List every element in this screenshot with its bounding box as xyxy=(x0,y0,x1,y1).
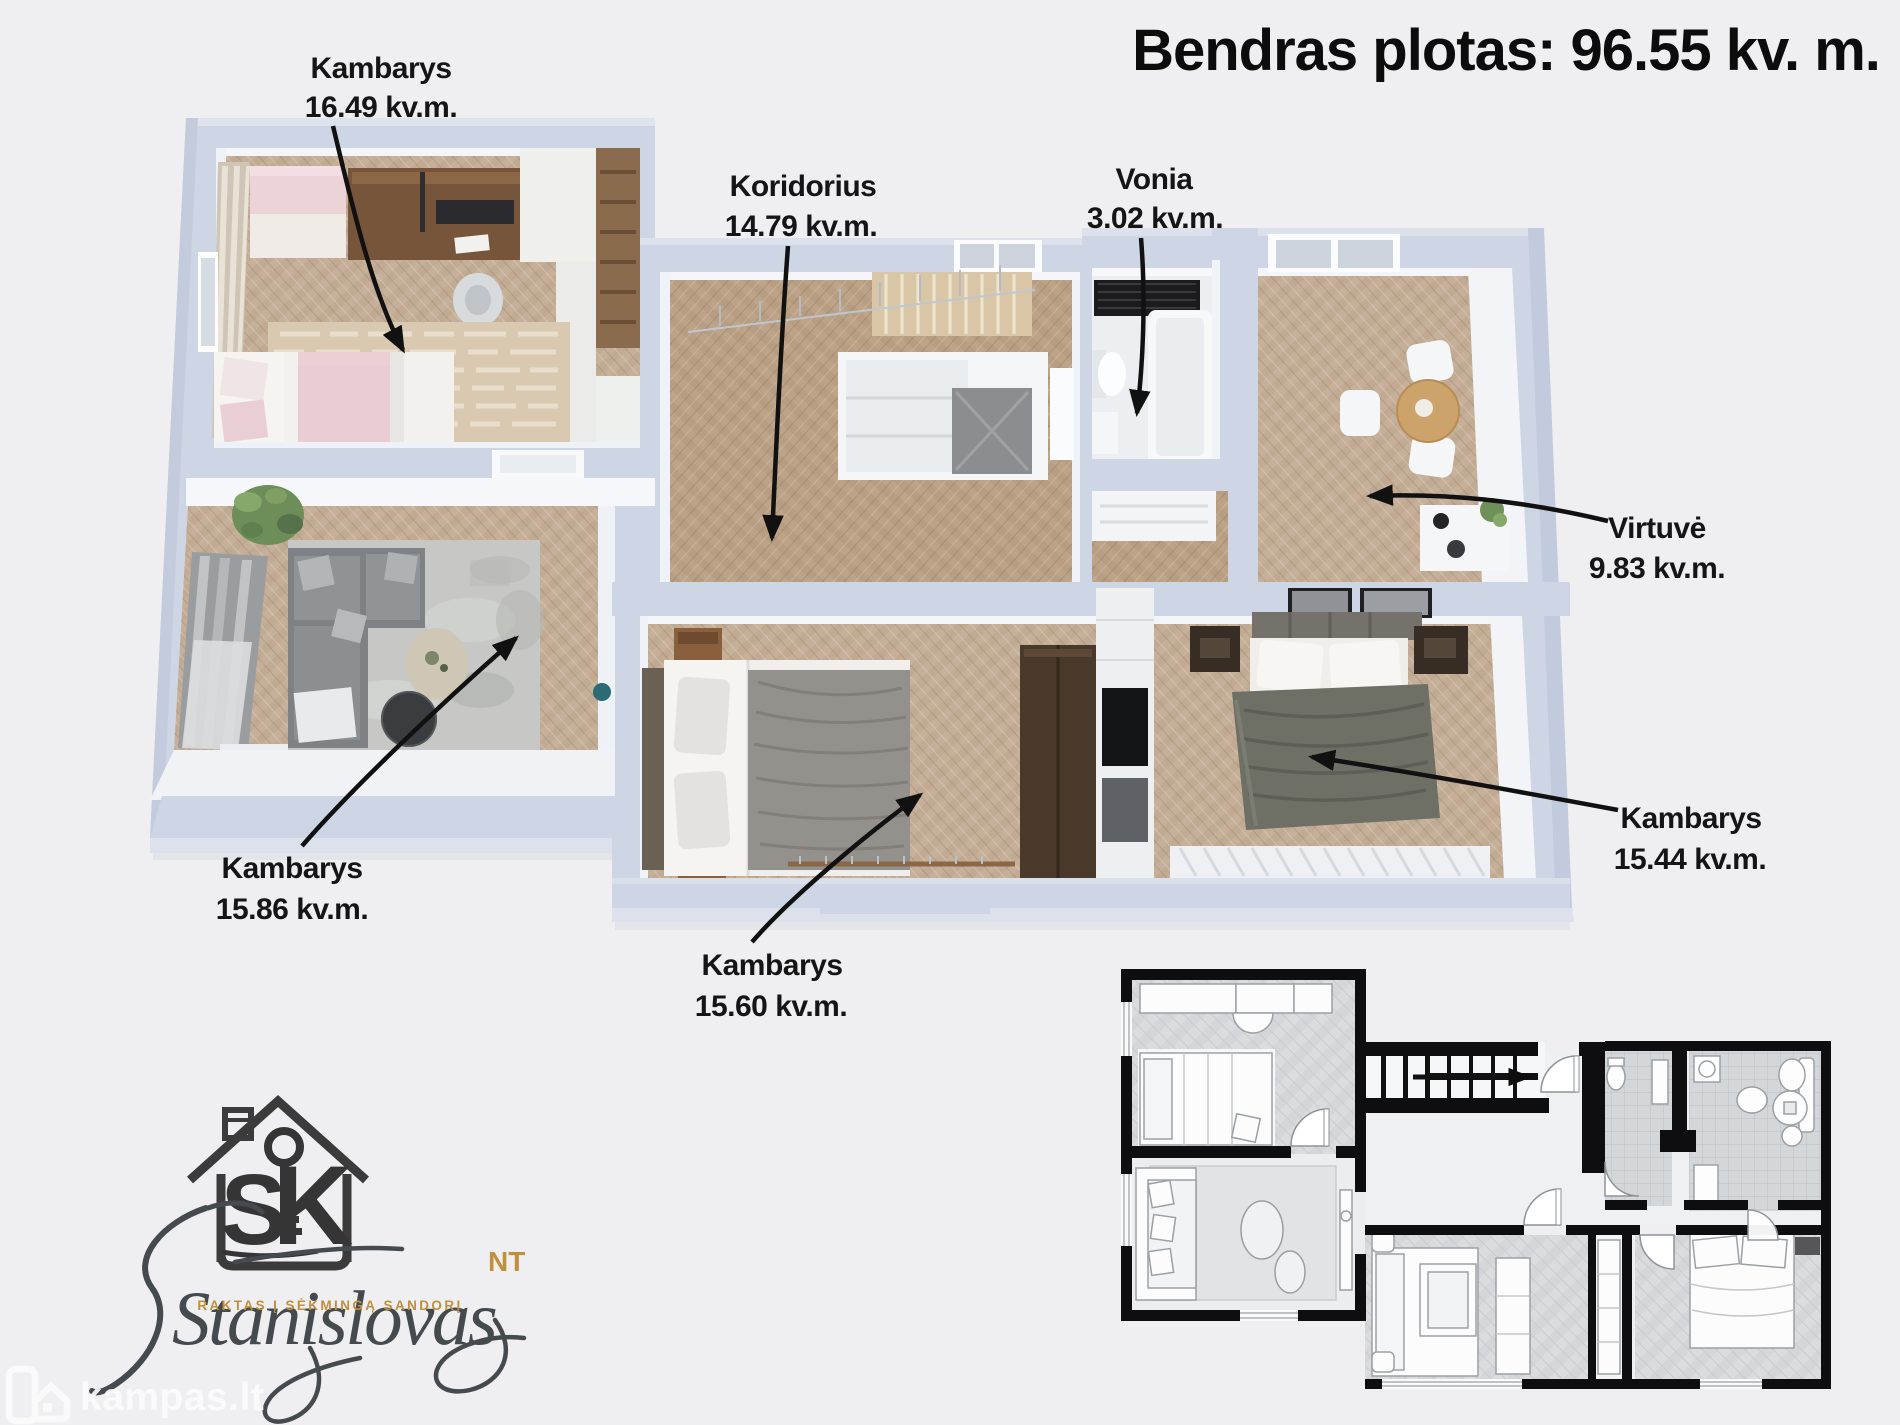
svg-text:Kambarys: Kambarys xyxy=(310,52,451,85)
svg-text:Kambarys: Kambarys xyxy=(221,852,362,885)
svg-text:16.49 kv.m.: 16.49 kv.m. xyxy=(305,91,457,124)
svg-text:15.86 kv.m.: 15.86 kv.m. xyxy=(216,893,368,926)
svg-text:Kambarys: Kambarys xyxy=(701,949,842,982)
svg-text:3.02 kv.m.: 3.02 kv.m. xyxy=(1087,202,1223,235)
svg-text:14.79 kv.m.: 14.79 kv.m. xyxy=(725,210,877,243)
svg-text:9.83 kv.m.: 9.83 kv.m. xyxy=(1589,552,1725,585)
svg-text:NT: NT xyxy=(488,1246,525,1277)
svg-text:Vonia: Vonia xyxy=(1116,163,1194,196)
svg-text:Kambarys: Kambarys xyxy=(1620,802,1761,835)
svg-text:Koridorius: Koridorius xyxy=(730,170,877,203)
svg-text:15.44 kv.m.: 15.44 kv.m. xyxy=(1614,843,1766,876)
svg-text:15.60 kv.m.: 15.60 kv.m. xyxy=(695,990,847,1023)
svg-text:RAKTAS Į SĖKMINGĄ SANDORĮ: RAKTAS Į SĖKMINGĄ SANDORĮ xyxy=(197,1298,462,1313)
svg-text:kampas.lt: kampas.lt xyxy=(80,1376,264,1419)
svg-text:Virtuvė: Virtuvė xyxy=(1608,512,1706,545)
svg-text:Stanislovas: Stanislovas xyxy=(172,1275,496,1361)
svg-text:Bendras plotas: 96.55 kv. m.: Bendras plotas: 96.55 kv. m. xyxy=(1132,18,1880,83)
